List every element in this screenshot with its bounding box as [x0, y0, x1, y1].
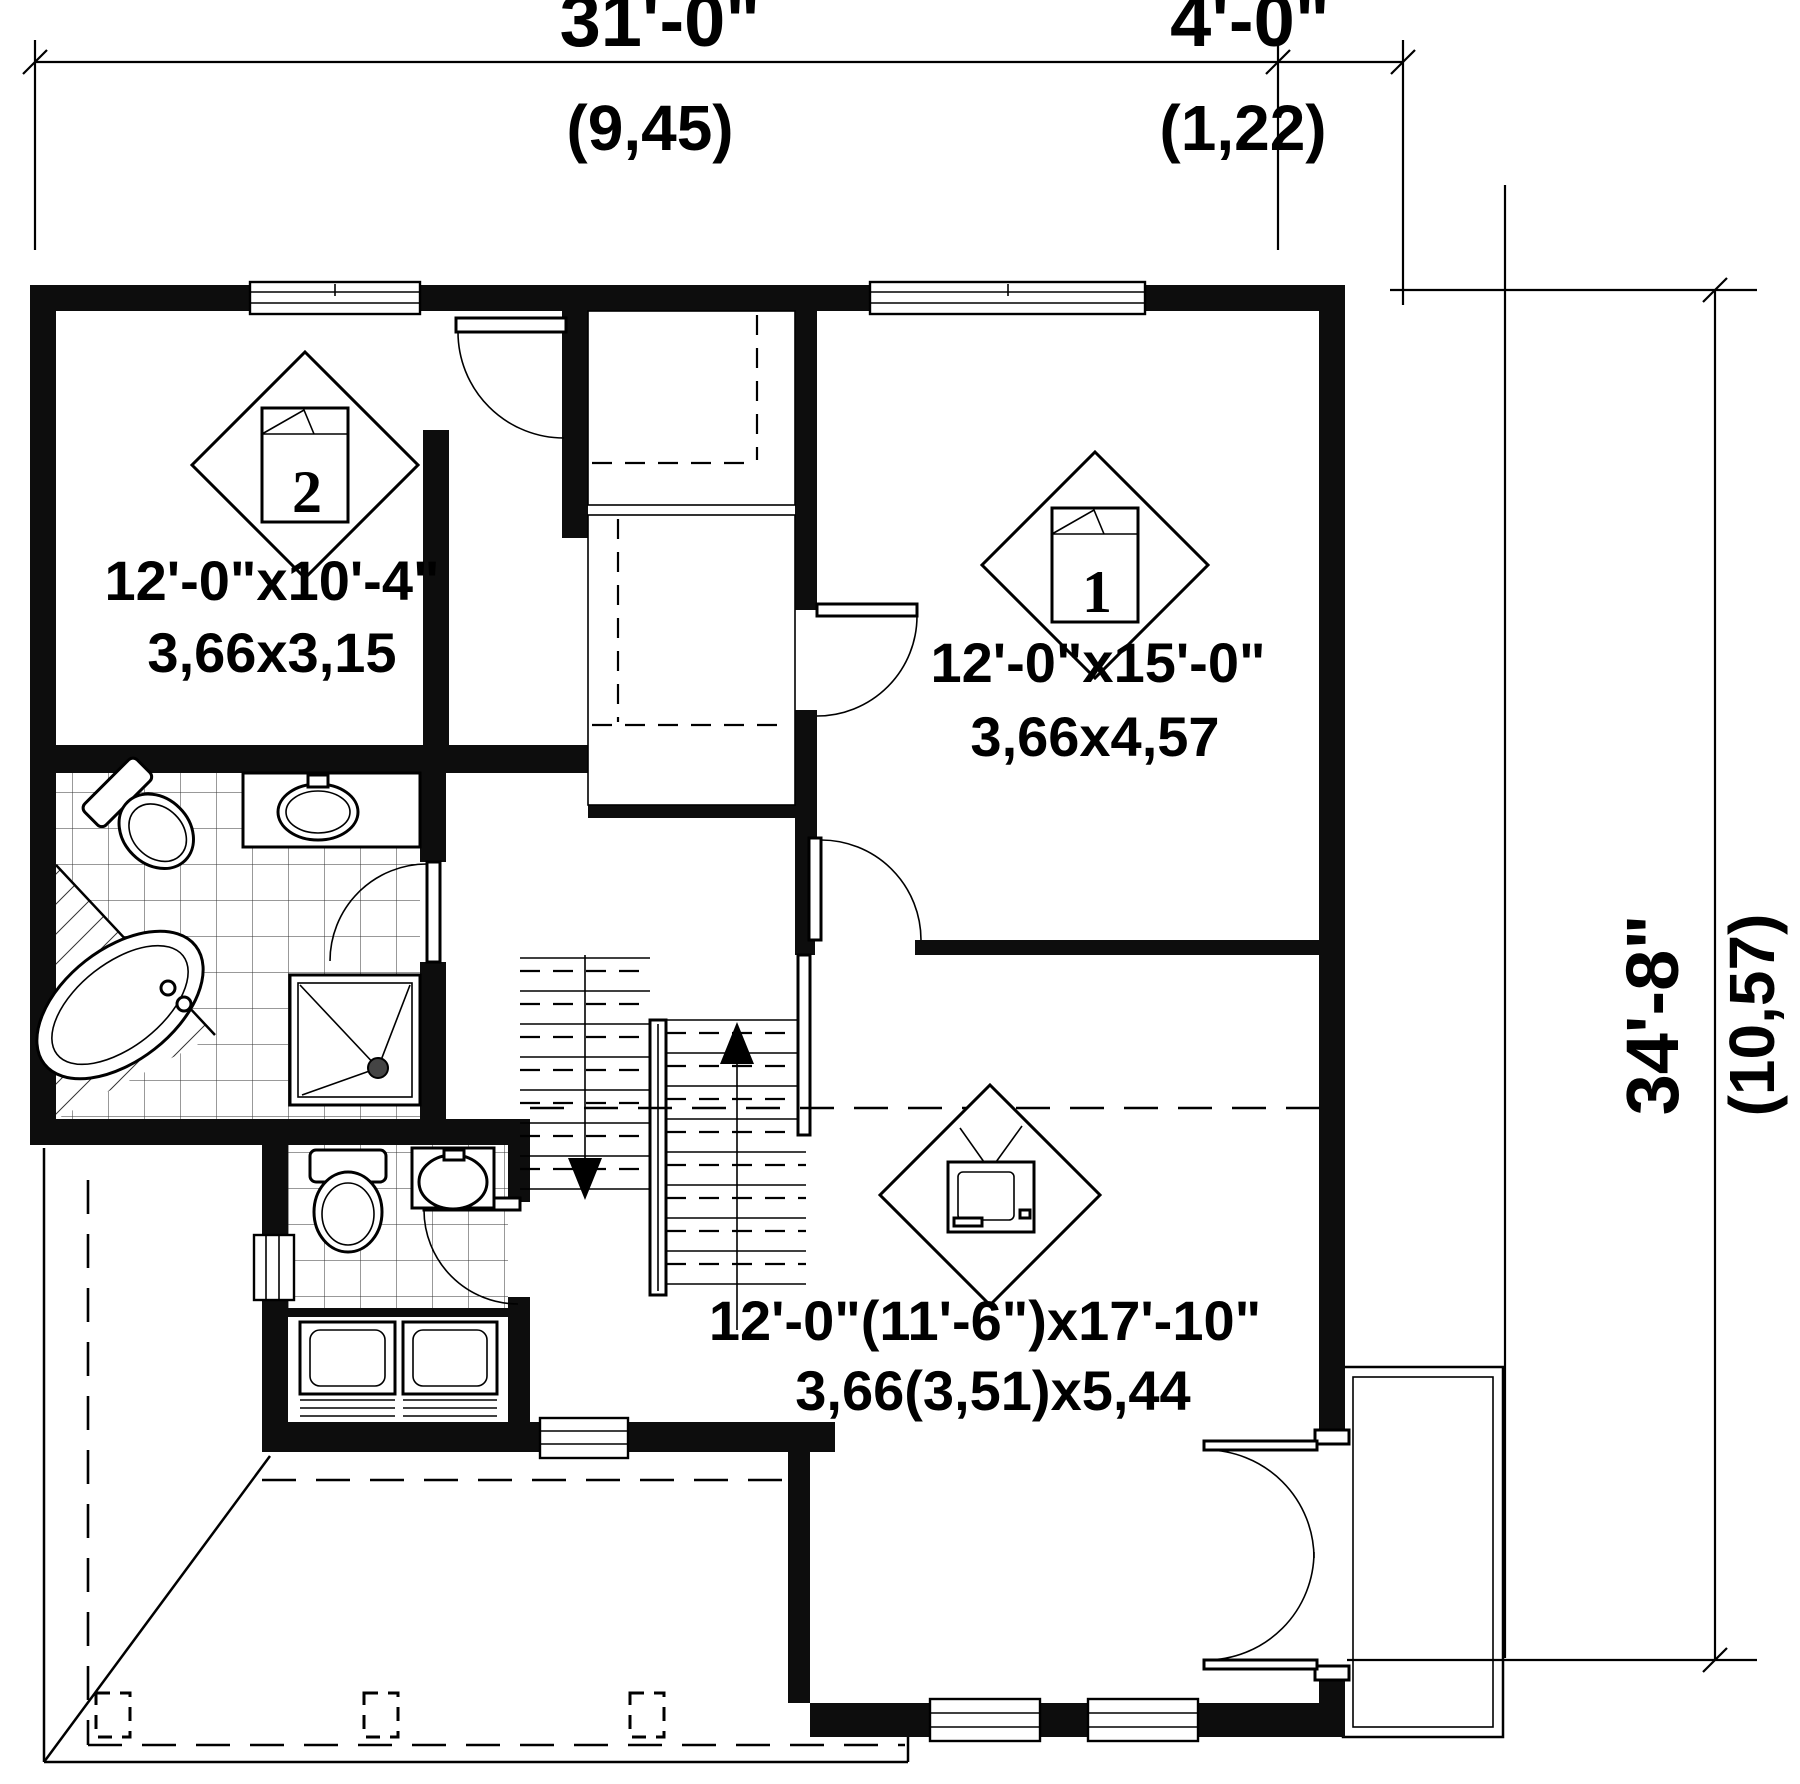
window-bedroom1 [870, 282, 1145, 314]
laundry [300, 1322, 497, 1416]
french-door-balcony [1204, 1430, 1349, 1680]
room-size-metric: 3,66x3,15 [147, 621, 396, 684]
porch-post [630, 1693, 664, 1737]
shower [290, 975, 420, 1105]
dim-right-metric: (10,57) [1716, 914, 1788, 1117]
door-bedroom1 [817, 604, 917, 716]
sink-2 [412, 1148, 494, 1209]
stair-flight-up [666, 1020, 806, 1330]
closets [588, 311, 795, 805]
staircase [520, 955, 810, 1330]
floor-plan-canvas: 31'-0" (9,45) 4'-0" (1,22) 34'-8" (10,57… [0, 0, 1800, 1784]
room-size-imperial: 12'-0"(11'-6")x17'-10" [709, 1289, 1261, 1352]
toilet-2 [310, 1150, 386, 1252]
tub-faucet [161, 981, 175, 995]
room-size-imperial: 12'-0"x15'-0" [930, 631, 1265, 694]
dim-topright-imperial: 4'-0" [1170, 0, 1330, 62]
dim-topright-metric: (1,22) [1159, 92, 1326, 164]
porch-post [96, 1693, 130, 1737]
shower-drain [368, 1058, 388, 1078]
room-number: 2 [292, 459, 322, 525]
door-family [809, 838, 921, 940]
dim-top-metric: (9,45) [566, 92, 733, 164]
room-family: 12'-0"(11'-6")x17'-10" 3,66(3,51)x5,44 [709, 1085, 1261, 1422]
window-bedroom2 [250, 282, 420, 314]
window-laundry-side [254, 1235, 294, 1300]
washer [300, 1322, 395, 1416]
stair-flight-down [520, 955, 650, 1200]
dryer [403, 1322, 497, 1416]
room-number: 1 [1082, 559, 1112, 625]
doors [330, 318, 1349, 1680]
room-bedroom-1: 1 12'-0"x15'-0" 3,66x4,57 [930, 452, 1265, 768]
balcony-deck [1343, 1367, 1503, 1737]
stair-up-arrow-icon [720, 1022, 754, 1064]
vanity-sink [243, 773, 420, 847]
room-bedroom-2: 2 12'-0"x10'-4" 3,66x3,15 [104, 352, 439, 684]
dim-right-imperial: 34'-8" [1611, 915, 1694, 1116]
room-size-metric: 3,66(3,51)x5,44 [795, 1359, 1190, 1422]
window-family-1 [930, 1699, 1040, 1741]
window-hall-bottom [540, 1418, 628, 1458]
door-bedroom2 [456, 318, 566, 438]
dim-top-imperial: 31'-0" [560, 0, 761, 62]
window-family-2 [1088, 1699, 1198, 1741]
porch-post [364, 1693, 398, 1737]
room-size-imperial: 12'-0"x10'-4" [104, 549, 439, 612]
stair-down-arrow-icon [568, 1158, 602, 1200]
room-size-metric: 3,66x4,57 [970, 705, 1219, 768]
floor-plan-page: 31'-0" (9,45) 4'-0" (1,22) 34'-8" (10,57… [0, 0, 1800, 1784]
